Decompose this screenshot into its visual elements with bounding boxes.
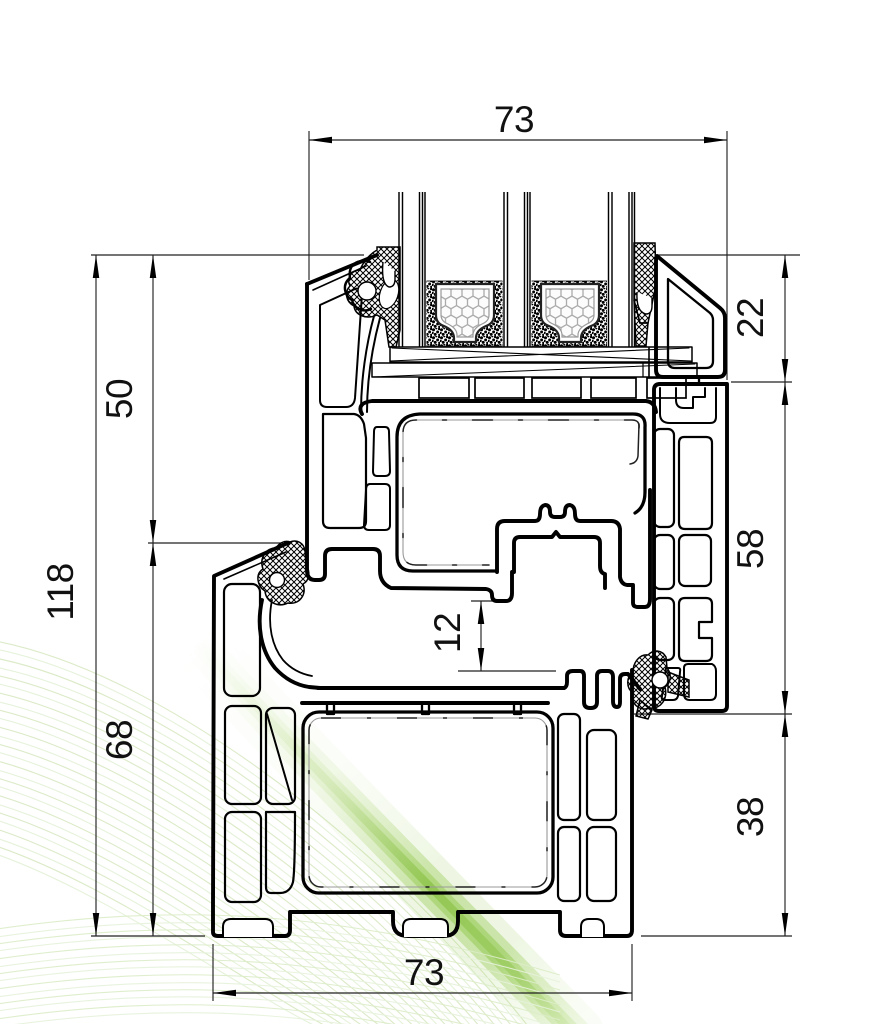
svg-text:118: 118	[40, 563, 81, 621]
svg-text:73: 73	[494, 99, 534, 140]
svg-text:22: 22	[730, 298, 771, 338]
svg-text:58: 58	[730, 529, 771, 569]
svg-text:73: 73	[404, 952, 444, 993]
svg-text:68: 68	[99, 720, 140, 760]
svg-text:12: 12	[427, 613, 468, 653]
svg-text:38: 38	[730, 797, 771, 837]
svg-text:50: 50	[99, 379, 140, 419]
